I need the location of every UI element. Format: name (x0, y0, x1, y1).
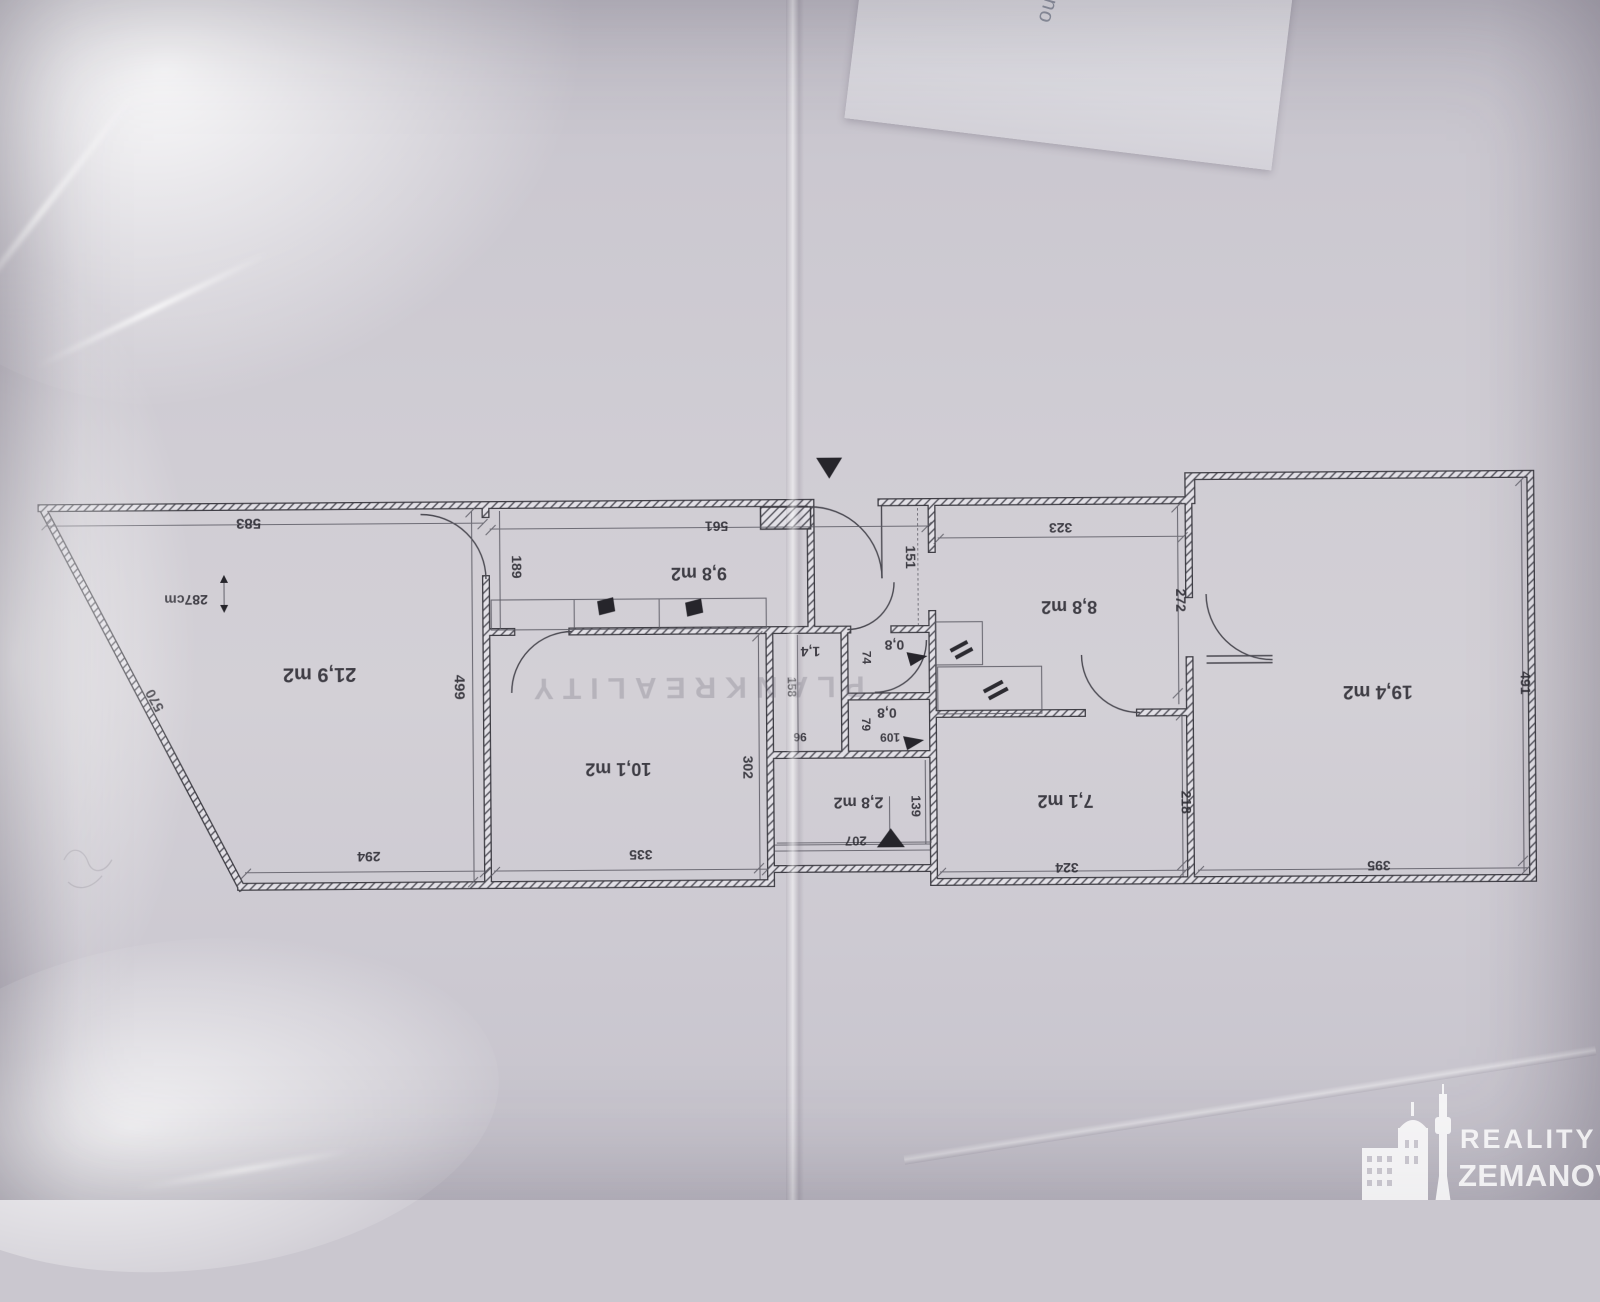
dim-302: 302 (740, 756, 756, 780)
room-label-219: 21,9 m2 (283, 663, 357, 686)
dimension-extension-line (917, 508, 918, 626)
dim-79: 79 (859, 718, 873, 732)
dim-272: 272 (1173, 589, 1189, 613)
dim-294: 294 (357, 849, 381, 865)
dim-491: 491 (1518, 671, 1534, 695)
city-skyline-icon (1362, 1084, 1451, 1200)
plastic-crease (904, 1045, 1597, 1164)
dim-583: 583 (236, 515, 261, 532)
room-label-194: 19,4 m2 (1343, 681, 1413, 702)
agency-logo: REALITY ZEMANOVÁ (1352, 1084, 1600, 1200)
floor-plan: PLANKREALITY 21,9 m2 9,8 m2 10,1 m2 1,4 … (33, 440, 1542, 1010)
plastic-sheen-top-left (0, 0, 676, 484)
photo-vignette (0, 0, 1600, 1200)
plastic-wrinkle (0, 90, 138, 330)
room-label-28: 2,8 m2 (833, 793, 883, 810)
dim-324: 324 (1055, 860, 1079, 876)
room-label-08b: 0,8 (877, 705, 897, 721)
pencil-scribble (64, 850, 112, 888)
floor-plan-svg: PLANKREALITY 21,9 m2 9,8 m2 10,1 m2 1,4 … (33, 440, 1542, 1010)
room-label-71: 7,1 m2 (1037, 791, 1093, 811)
room-labels: 21,9 m2 9,8 m2 10,1 m2 1,4 0,8 0,8 2,8 m… (282, 559, 1413, 817)
dim-207: 207 (845, 833, 867, 848)
dimension-lines (41, 476, 1532, 890)
paper-background (0, 0, 1600, 1200)
plastic-sheen-left (0, 230, 210, 1090)
entry-wall-block (760, 507, 810, 529)
dim-158: 158 (785, 677, 799, 697)
dimension-labels: 583 287cm 570 499 294 189 561 335 302 15… (140, 506, 1535, 883)
dim-109: 109 (880, 730, 900, 744)
plan-symbols (219, 457, 929, 852)
plastic-wrinkle (35, 251, 271, 369)
back-sheet-partial-text: leno (1032, 0, 1067, 27)
dim-151: 151 (903, 545, 919, 569)
dim-561: 561 (705, 518, 729, 534)
walls (41, 474, 1533, 888)
dim-139: 139 (908, 795, 923, 817)
radiator-marks (950, 641, 1007, 698)
fixtures (224, 571, 1043, 855)
plan-watermark: PLANKREALITY (525, 669, 865, 704)
plastic-sheen-bottom-left (0, 909, 516, 1302)
dim-74: 74 (859, 651, 873, 665)
logo-line-1: REALITY (1460, 1124, 1597, 1154)
dim-395: 395 (1367, 858, 1391, 874)
logo-line-2: ZEMANOVÁ (1458, 1158, 1600, 1193)
room-label-88: 8,8 m2 (1041, 597, 1097, 617)
entrance-arrow-icon (816, 458, 842, 479)
room-label-14: 1,4 (800, 644, 820, 660)
dim-570: 570 (142, 687, 167, 715)
doors (420, 504, 1272, 718)
dim-189: 189 (509, 555, 525, 579)
dim-218: 218 (1178, 790, 1194, 814)
room-label-101: 10,1 m2 (585, 759, 651, 779)
room-label-08a: 0,8 (884, 637, 904, 653)
dim-335: 335 (629, 847, 653, 863)
paper-fold-crease (786, 0, 804, 1200)
dim-96: 96 (793, 730, 807, 744)
height-note: 287cm (164, 592, 208, 608)
back-sheet-corner: leno (844, 0, 1295, 170)
room-label-98: 9,8 m2 (671, 563, 727, 583)
dim-323: 323 (1049, 520, 1073, 536)
agency-logo-svg: REALITY ZEMANOVÁ (1352, 1084, 1600, 1200)
dim-499: 499 (451, 675, 468, 700)
plastic-wrinkle (134, 1148, 352, 1192)
